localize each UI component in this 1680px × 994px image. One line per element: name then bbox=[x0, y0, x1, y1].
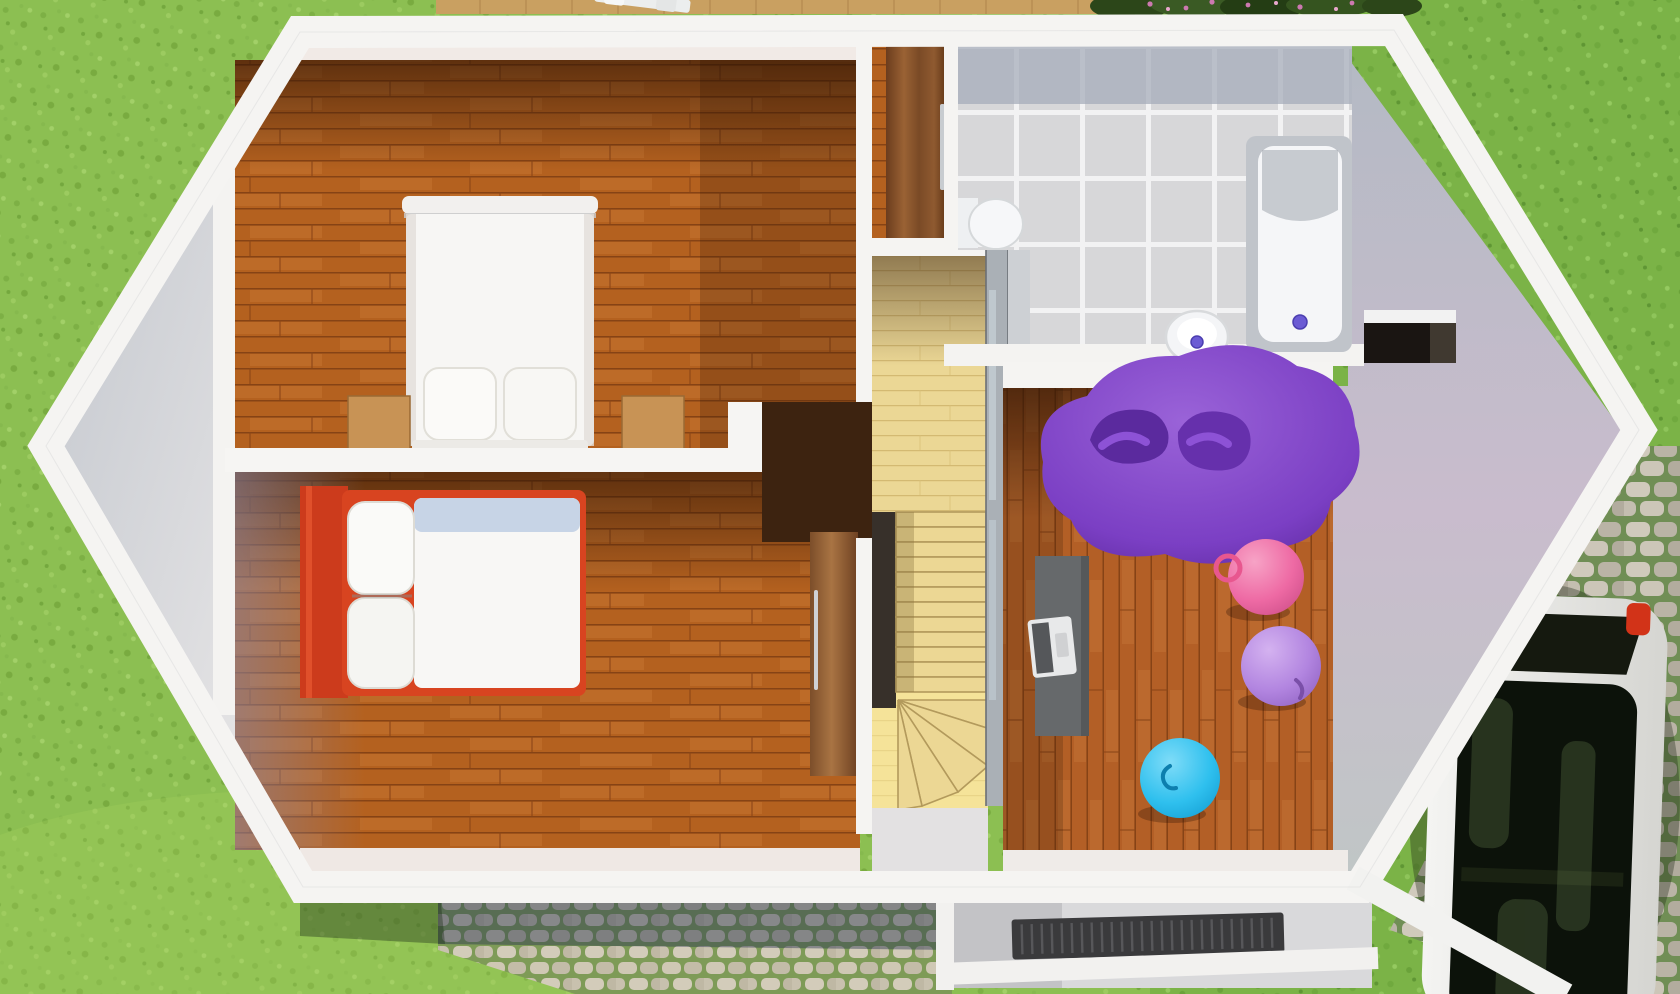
stairs-straight-flight bbox=[896, 512, 986, 692]
glass-pane-upper bbox=[989, 290, 996, 500]
wardrobe bbox=[810, 532, 858, 776]
storage-niche bbox=[1364, 310, 1456, 363]
bathtub-drain bbox=[1293, 315, 1307, 329]
bathroom-left-wall bbox=[944, 46, 958, 252]
bathtub-inner-shadow bbox=[1262, 150, 1338, 221]
car-taillight-right bbox=[1626, 603, 1651, 636]
pillow-left bbox=[424, 368, 496, 440]
desk bbox=[1027, 556, 1089, 736]
nightstand-right bbox=[622, 396, 684, 452]
floor-plan-scene: Master bedroom Second bedro bbox=[0, 0, 1680, 994]
house: Master bedroom Second bedro bbox=[46, 30, 1639, 994]
floor-plan-render: Master bedroom Second bedro bbox=[0, 0, 1680, 994]
pillow-right bbox=[504, 368, 576, 440]
toilet-flush-button bbox=[1191, 336, 1203, 348]
room-playroom: Play room / office bbox=[1003, 345, 1360, 876]
kids-pillow-top bbox=[348, 502, 414, 594]
bed-foot-roll bbox=[402, 196, 598, 214]
nightstand-left bbox=[348, 396, 410, 452]
kids-pillow-bottom bbox=[348, 598, 414, 688]
house-shadow-on-path bbox=[438, 898, 952, 950]
wall-toilet bbox=[958, 198, 1023, 249]
hall-landing-floor bbox=[872, 808, 988, 876]
wardrobe-handle bbox=[814, 590, 818, 690]
closet-cabinet bbox=[886, 44, 946, 242]
bathroom-dark-tile-band bbox=[944, 46, 1352, 104]
master-floor-shadow-right bbox=[700, 60, 860, 455]
laptop bbox=[1027, 616, 1077, 678]
laptop-trackpad bbox=[1055, 632, 1069, 657]
hall-left-wall-upper bbox=[856, 46, 872, 402]
bathtub bbox=[1246, 136, 1352, 352]
deck-strip bbox=[436, 0, 1106, 14]
doorway-passage-floor bbox=[762, 402, 874, 542]
double-bed bbox=[402, 196, 598, 452]
glass-pane-lower bbox=[989, 520, 996, 700]
kids-bed-sheet-fold bbox=[414, 498, 580, 532]
hall-left-wall-lower bbox=[856, 538, 872, 834]
single-bed bbox=[300, 486, 586, 698]
stairwell-void bbox=[872, 512, 896, 708]
room-bedroom-master: Master bedroom bbox=[235, 60, 860, 455]
